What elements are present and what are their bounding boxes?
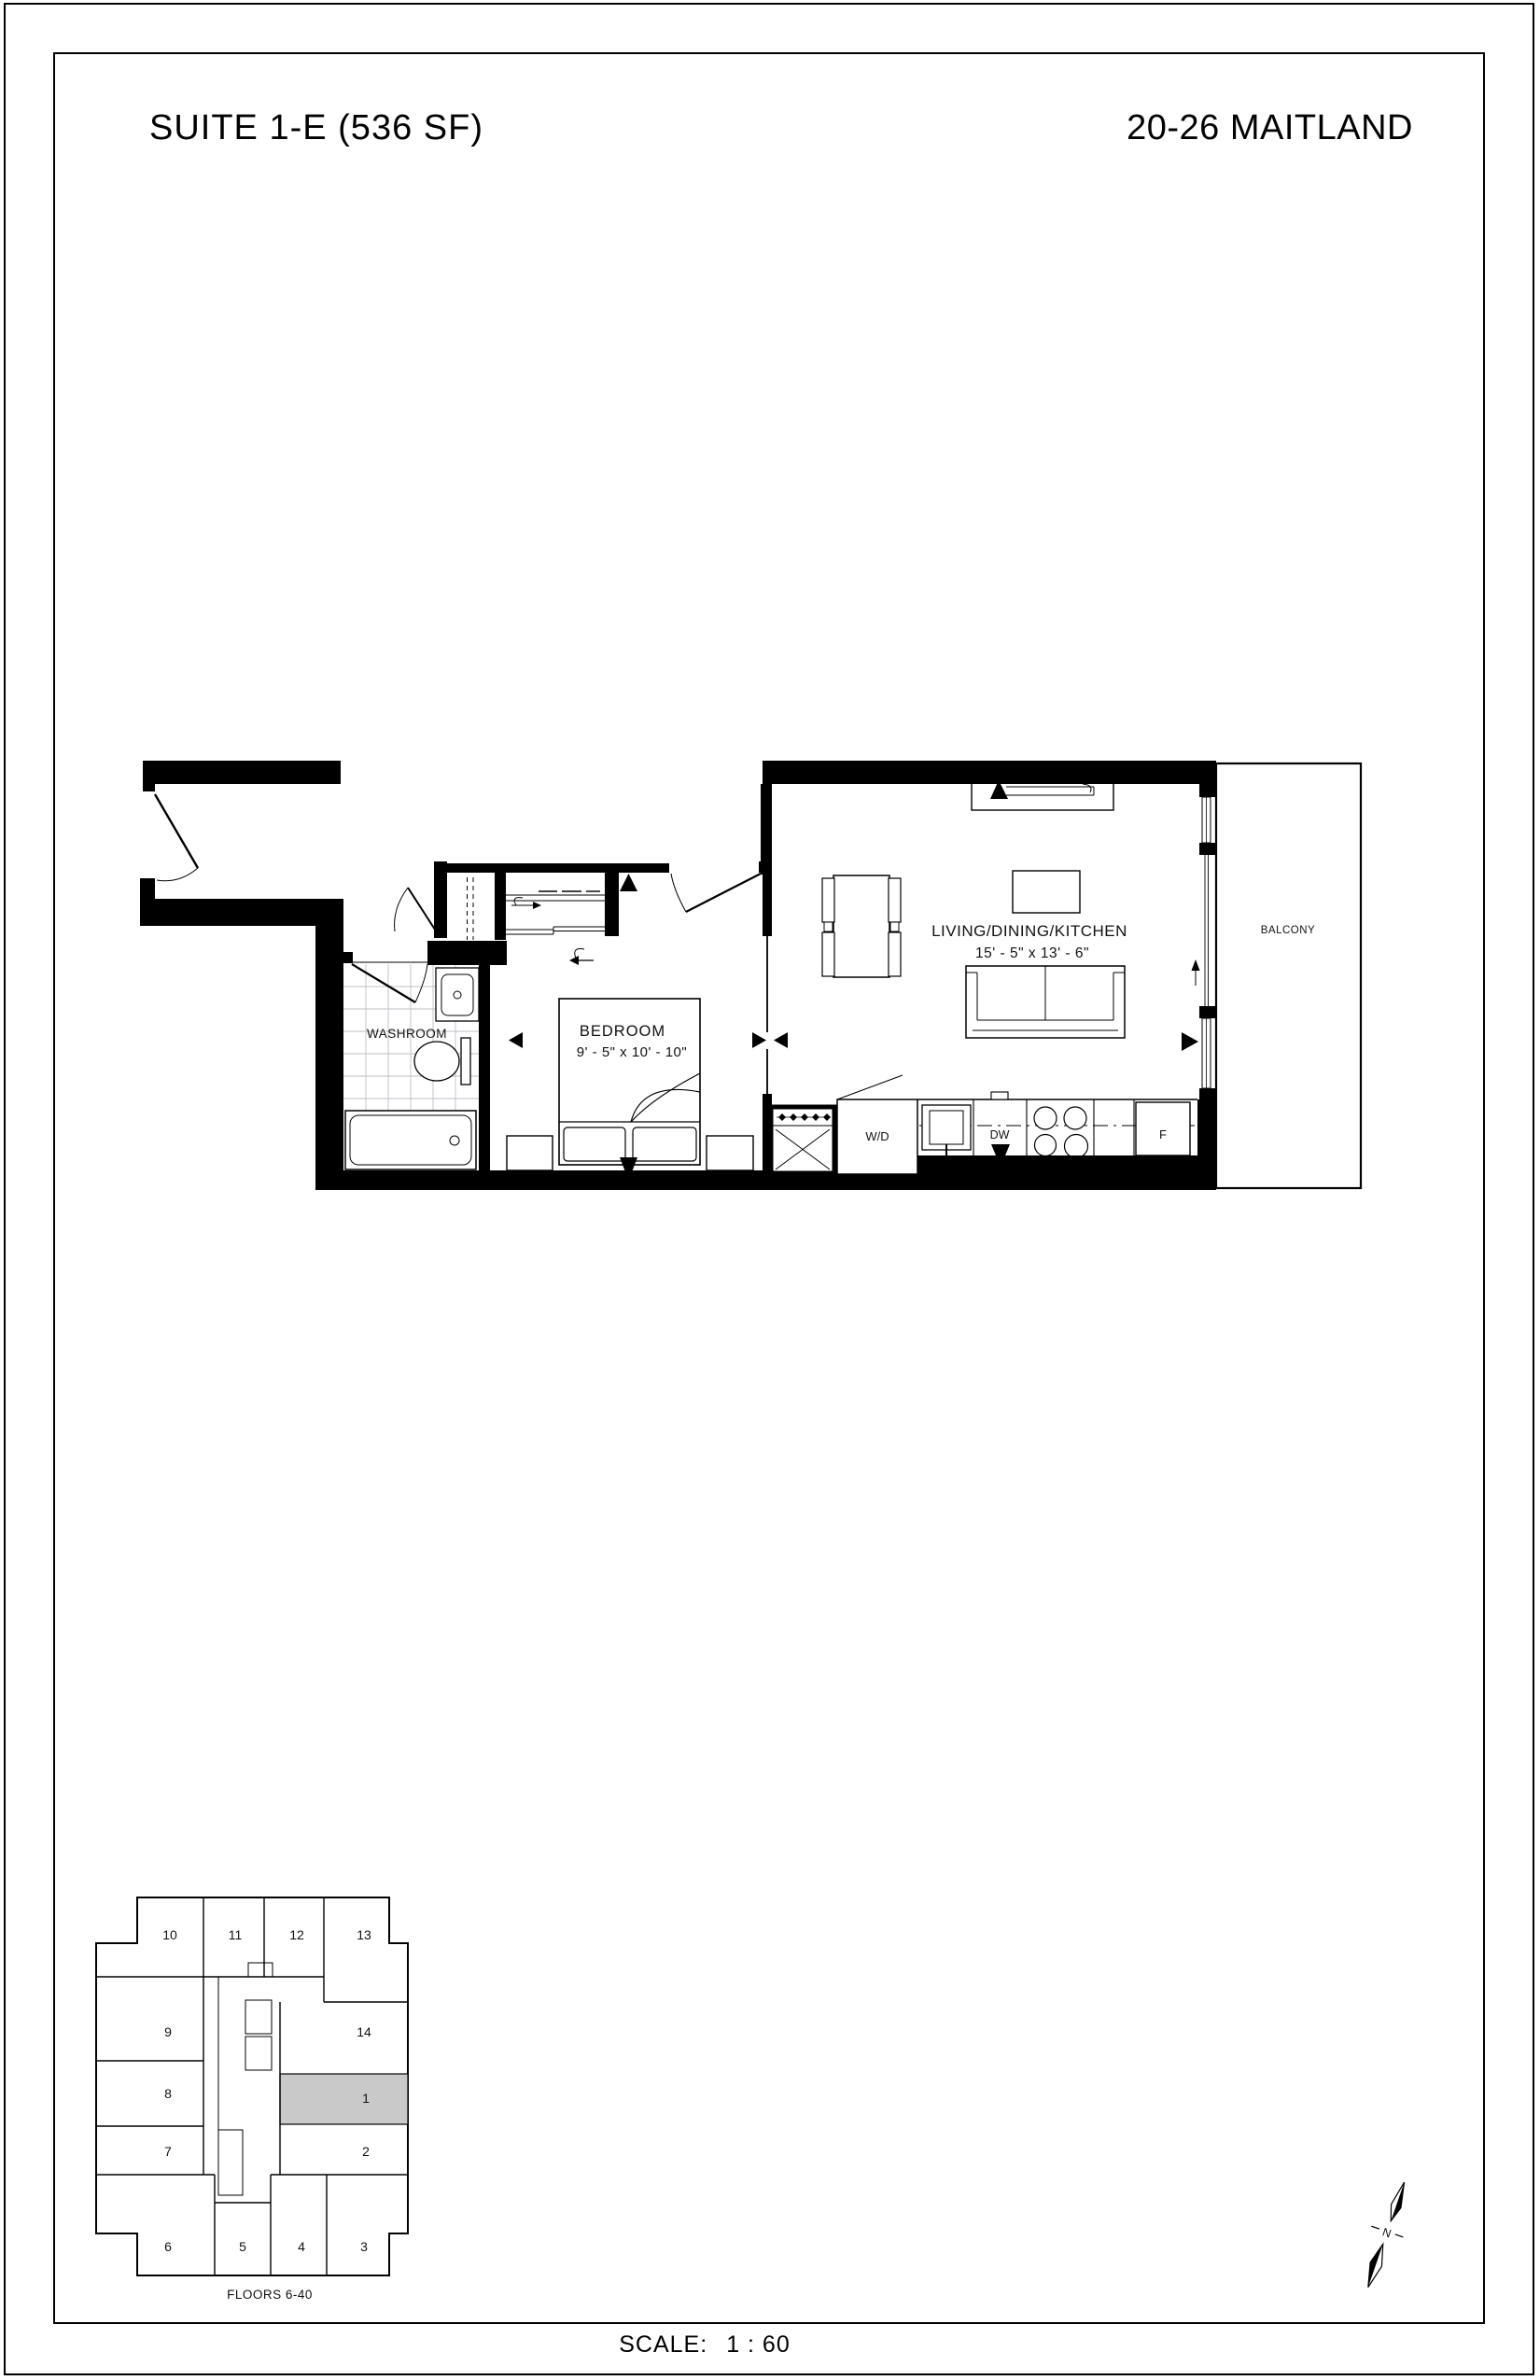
tv-console	[972, 780, 1113, 810]
bedroom-label: BEDROOM	[580, 1023, 665, 1040]
unit-6: 6	[164, 2239, 172, 2254]
washer-dryer-label: W/D	[865, 1129, 889, 1143]
toilet	[414, 1038, 470, 1085]
nightstand-right	[707, 1136, 753, 1170]
keyplan-unit1-highlight	[280, 2074, 408, 2124]
unit-11: 11	[229, 1927, 243, 1942]
living-label: LIVING/DINING/KITCHEN	[931, 922, 1127, 940]
unit-5: 5	[239, 2239, 246, 2254]
kitchen-sink	[922, 1105, 971, 1157]
balcony-outline	[1216, 763, 1361, 1188]
unit-1: 1	[362, 2091, 370, 2106]
living-dimensions: 15' - 5" x 13' - 6"	[975, 945, 1089, 961]
bedroom-dimensions: 9' - 5" x 10' - 10"	[577, 1044, 687, 1060]
building-name: 20-26 MAITLAND	[1127, 108, 1413, 148]
washroom-label: WASHROOM	[367, 1027, 447, 1041]
balcony-label: BALCONY	[1261, 925, 1315, 936]
keyplan-floors-label: FLOORS 6-40	[227, 2288, 313, 2302]
corridor-door	[155, 794, 198, 881]
balcony-glazing	[1202, 797, 1211, 1088]
unit-9: 9	[164, 2024, 172, 2039]
fridge-label: F	[1159, 1127, 1167, 1141]
foyer-closet-door	[395, 888, 437, 932]
bedroom-closet	[468, 877, 606, 940]
unit-2: 2	[362, 2144, 370, 2159]
washroom-sink	[436, 968, 479, 1021]
scale-value: 1 : 60	[726, 2331, 791, 2358]
entry-door	[671, 874, 761, 912]
unit-13: 13	[357, 1927, 371, 1942]
scale-label: SCALE:	[619, 2331, 707, 2358]
balcony-door-arrow	[1182, 959, 1200, 1051]
keyplan: 10 11 12 13 9 14 8 1 7 2 6 5 4 3 FLOORS …	[89, 1890, 417, 2305]
compass-north-label: N	[1380, 2225, 1393, 2240]
dishwasher-label: DW	[990, 1128, 1010, 1141]
scale-note: SCALE:1 : 60	[619, 2331, 791, 2359]
foyer-direction-arrow	[569, 949, 594, 966]
unit-7: 7	[164, 2144, 172, 2159]
unit-3: 3	[360, 2239, 368, 2254]
unit-4: 4	[298, 2239, 305, 2254]
unit-8: 8	[164, 2086, 172, 2101]
unit-12: 12	[289, 1927, 304, 1942]
stove	[1034, 1107, 1088, 1158]
unit-14: 14	[357, 2024, 371, 2039]
hanger-closet	[771, 1107, 834, 1173]
unit-10: 10	[162, 1927, 177, 1942]
suite-title: SUITE 1-E (536 SF)	[149, 108, 483, 148]
floorplan-drawing: WASHROOM BEDROOM 9' - 5" x 10' - 10" LIV…	[131, 751, 1372, 1199]
nightstand-left	[507, 1136, 553, 1170]
north-compass-icon: N	[1344, 2170, 1433, 2291]
coffee-table	[1013, 871, 1080, 913]
washroom-door	[350, 962, 428, 1002]
bathtub	[345, 1111, 476, 1169]
floorplan-sheet: { "header": { "suite_title": "SUITE 1-E …	[0, 0, 1540, 2380]
sofa	[966, 966, 1125, 1038]
dining-table	[822, 875, 901, 977]
